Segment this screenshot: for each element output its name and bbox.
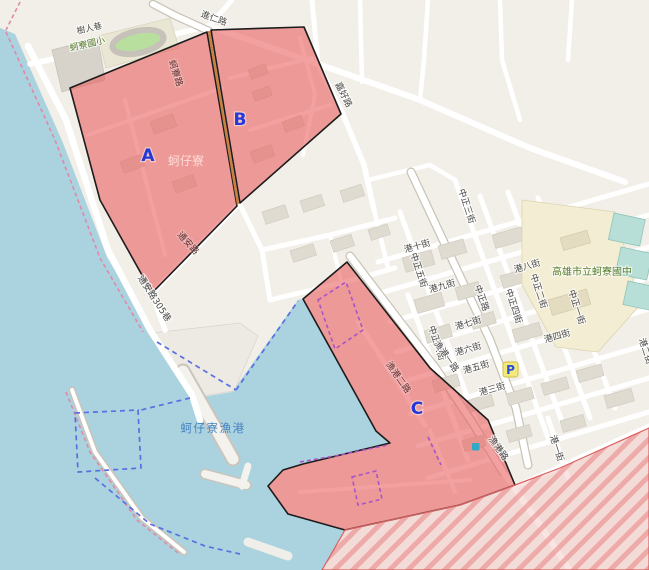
map-svg[interactable]: P 樹人巷 蚵寮國小 進仁路 嘉好路 蚵寮路 通安路 通安路305巷 蚵仔寮 蚵… <box>0 0 649 570</box>
parking-letter: P <box>506 363 515 377</box>
zone-b-label: B <box>234 110 247 130</box>
zone-c-label: C <box>411 399 423 419</box>
place-label-village: 蚵仔寮 <box>168 153 204 168</box>
zone-a-label: A <box>141 146 155 166</box>
map-canvas[interactable]: P 樹人巷 蚵寮國小 進仁路 嘉好路 蚵寮路 通安路 通安路305巷 蚵仔寮 蚵… <box>0 0 649 570</box>
parking-marker[interactable]: P <box>503 362 518 377</box>
bus-stop-icon[interactable] <box>472 443 480 451</box>
poi-label-junior-high: 高雄市立蚵寮國中 <box>552 265 632 278</box>
place-label-fishing-port: 蚵仔寮漁港 <box>181 421 246 435</box>
